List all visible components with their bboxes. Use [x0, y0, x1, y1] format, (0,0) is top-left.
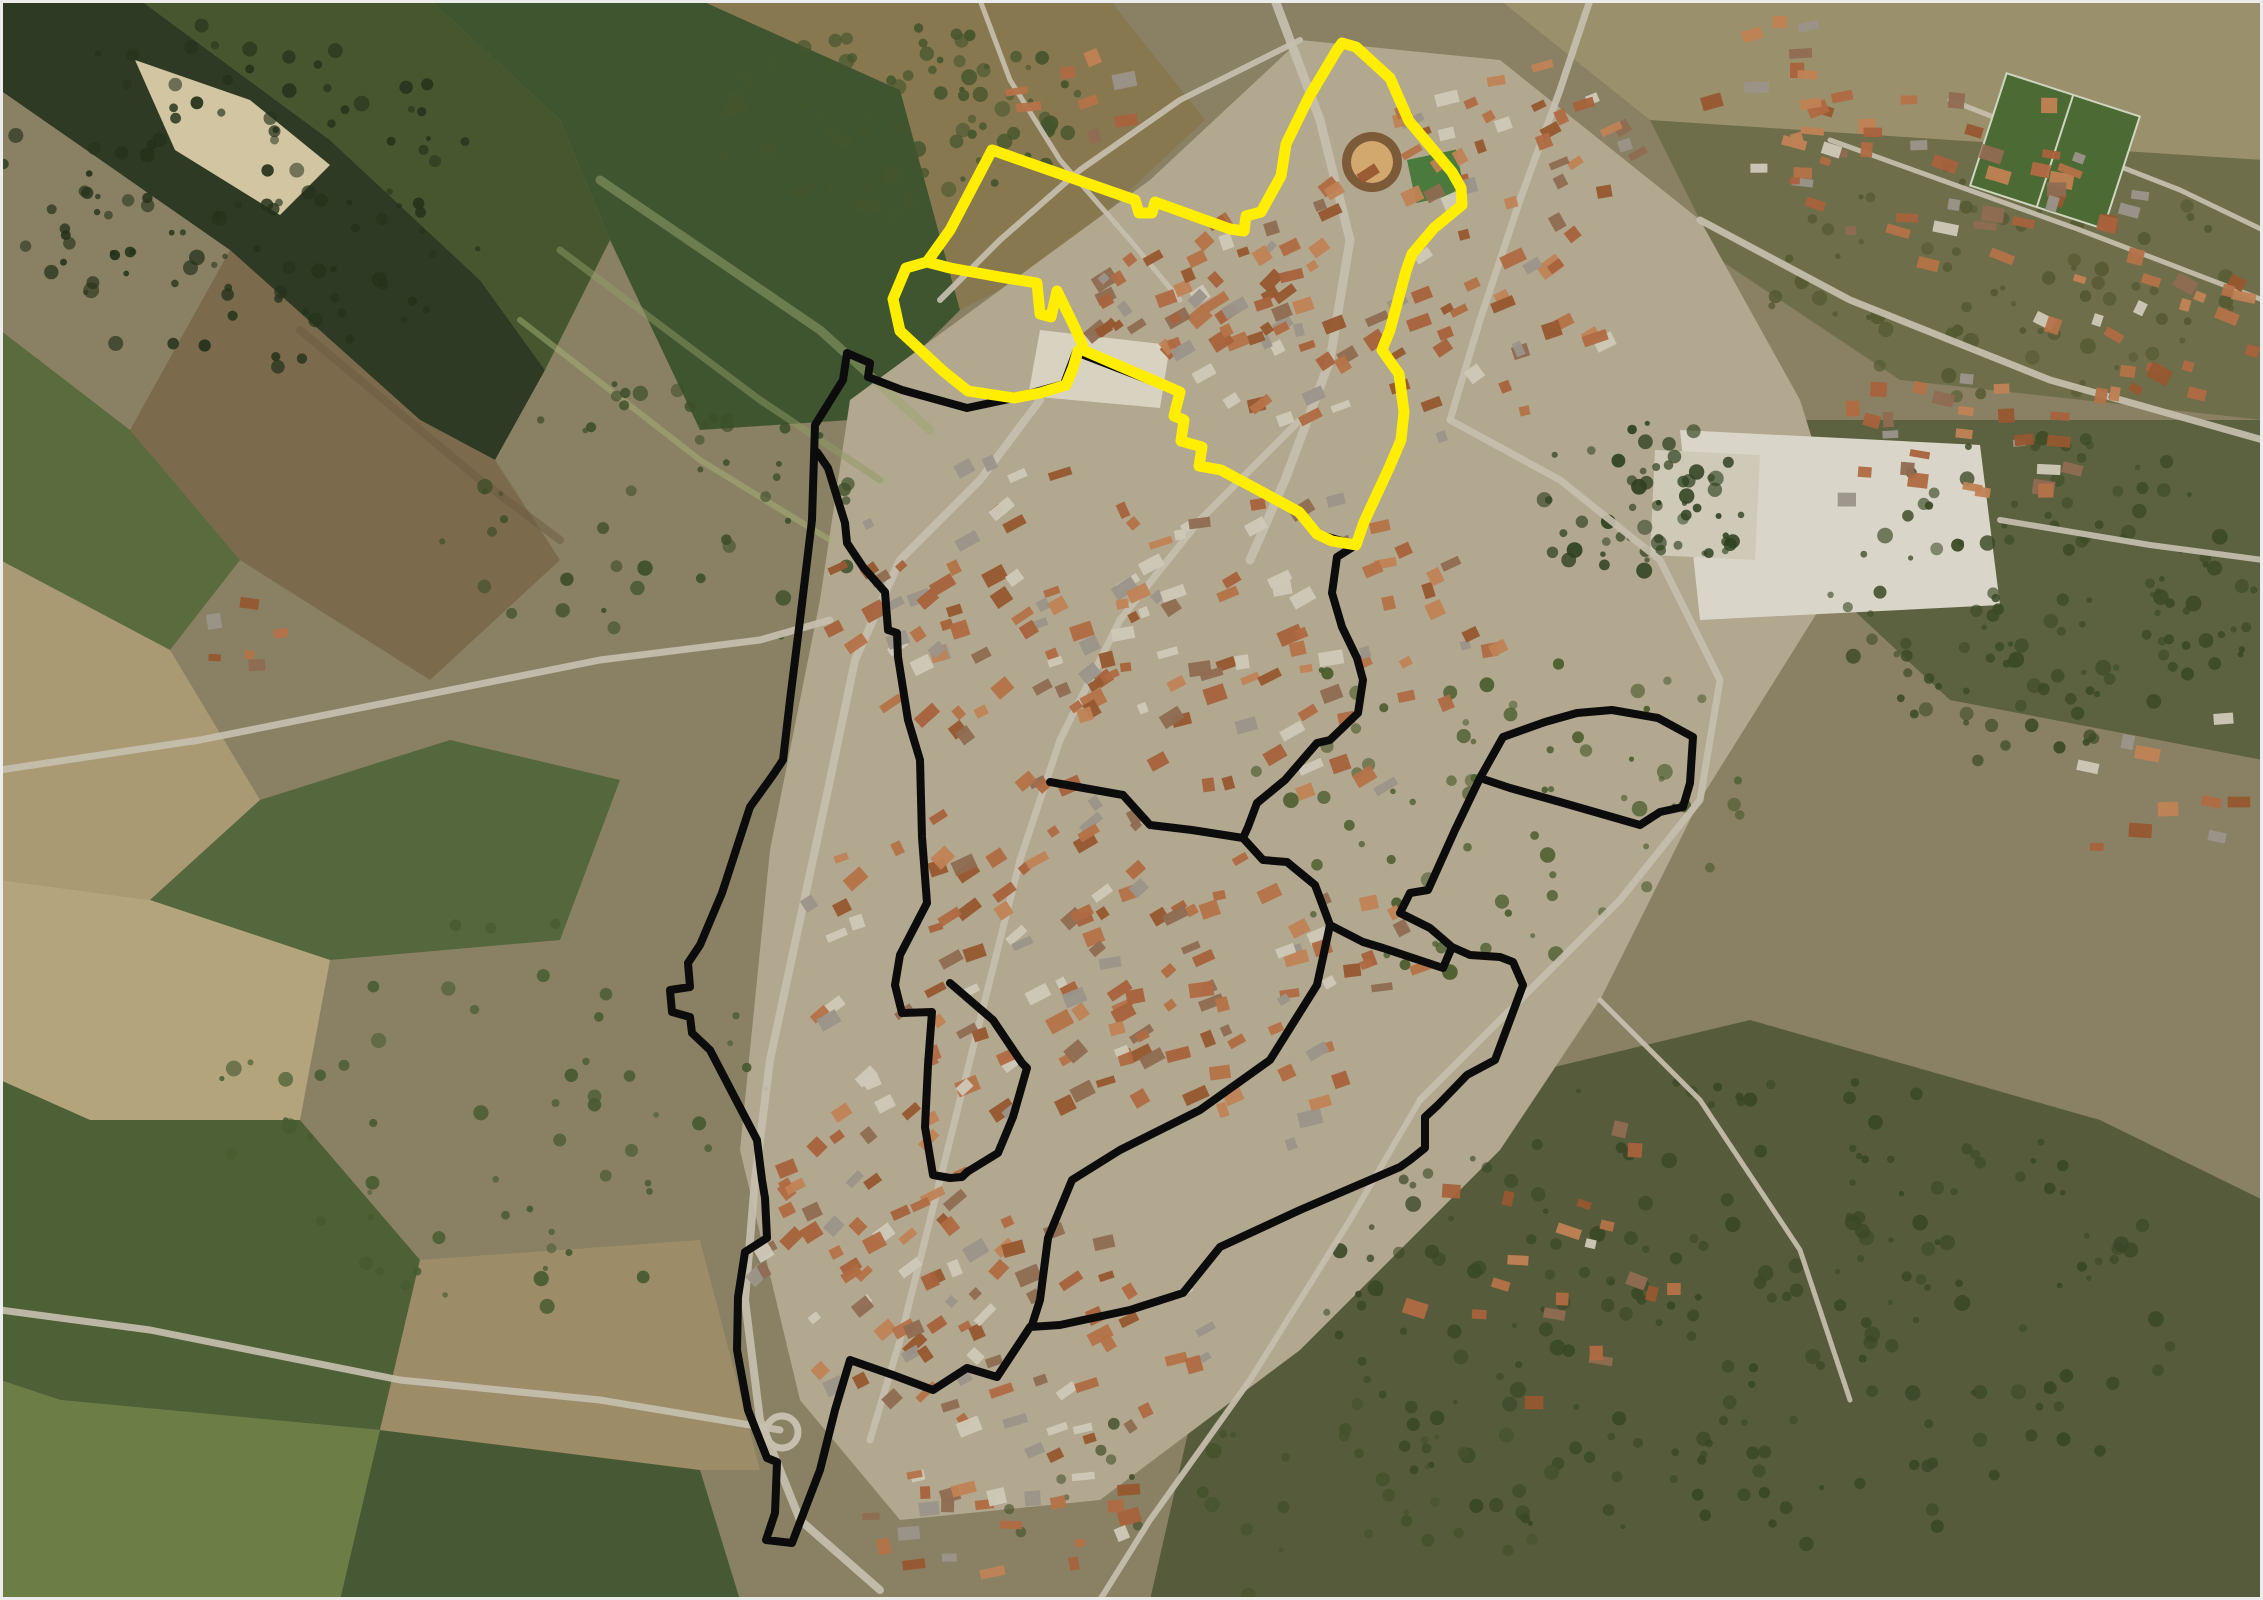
tan-fields-south	[380, 1240, 760, 1470]
satellite-map-screenshot	[0, 0, 2263, 1600]
aerial-imagery-canvas	[0, 0, 2263, 1600]
